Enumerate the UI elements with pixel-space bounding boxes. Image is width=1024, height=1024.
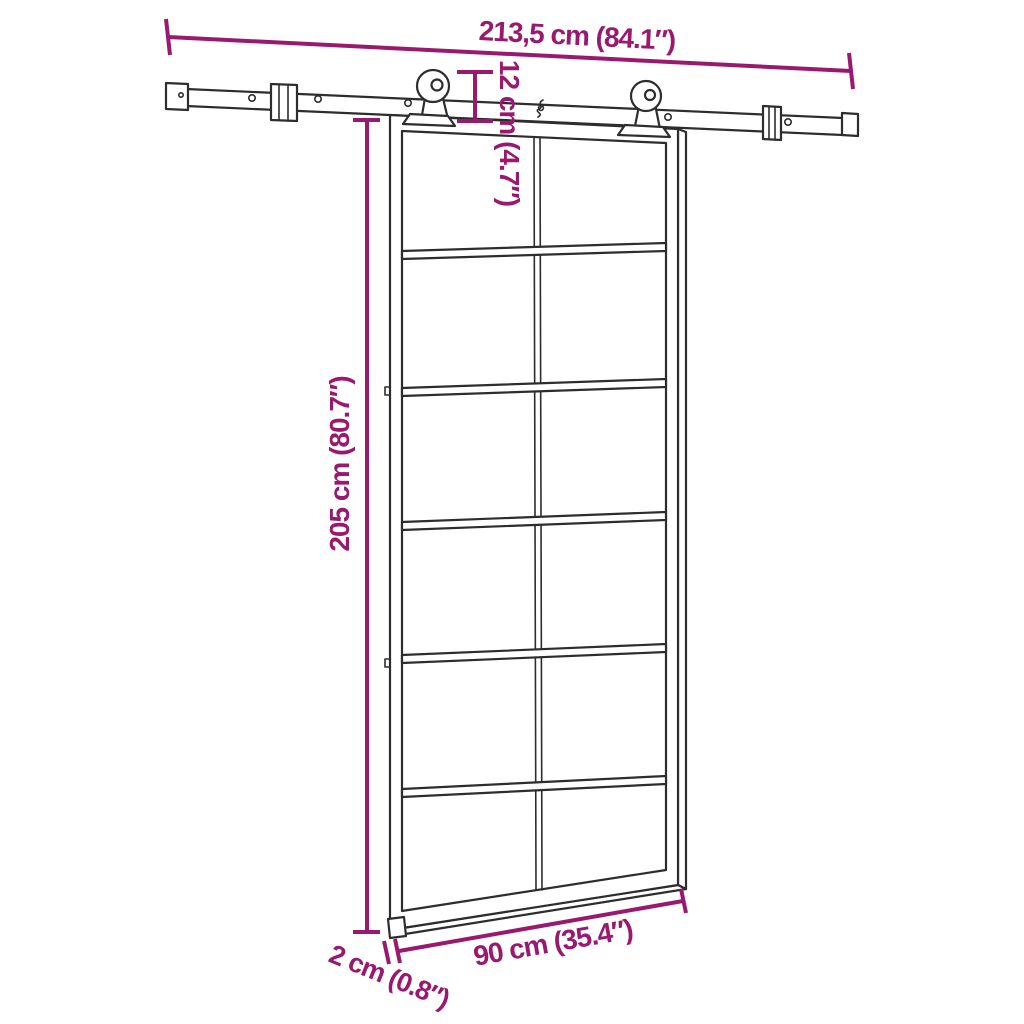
- dimension-label-hanger-drop: 12 cm (4.7″): [493, 60, 525, 206]
- sliding-door: [385, 115, 686, 938]
- roller-hub-left: [432, 80, 443, 91]
- dimension-label-door-height: 205 cm (80.7″): [324, 376, 356, 551]
- rail-end-cap-left: [166, 83, 188, 110]
- dimension-line-door-height: [353, 120, 380, 932]
- door-floor-guide: [388, 917, 406, 938]
- product-dimension-diagram: 213,5 cm (84.1″) 12 cm (4.7″) 205 cm (80…: [0, 0, 1024, 1024]
- roller-bracket-right: [618, 125, 670, 137]
- roller-bracket-left: [403, 114, 455, 126]
- door-edge-mark-upper: [385, 387, 390, 395]
- rail-connector-right: [763, 106, 781, 140]
- roller-hub-right: [645, 90, 655, 100]
- door-side-face-right: [678, 129, 686, 889]
- rail-connector-left: [271, 84, 297, 121]
- rail-end-cap-right: [842, 113, 858, 136]
- door-edge-mark-lower: [385, 659, 390, 667]
